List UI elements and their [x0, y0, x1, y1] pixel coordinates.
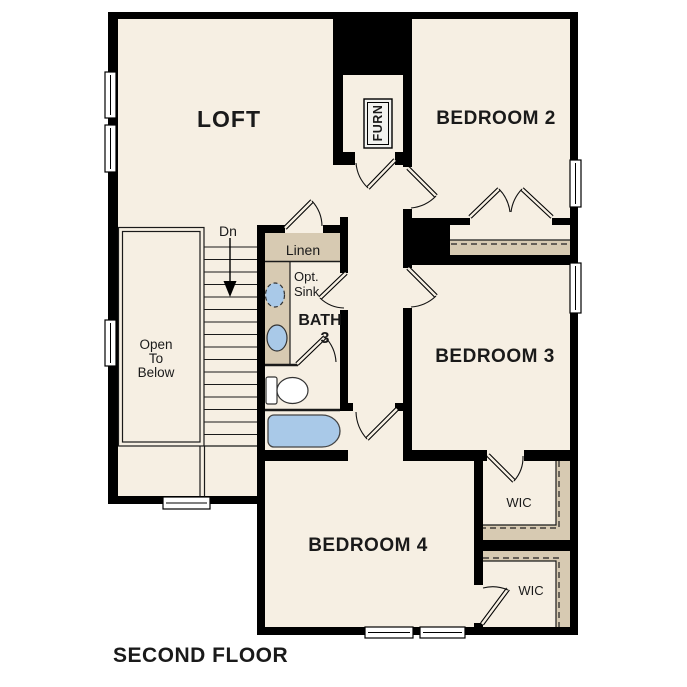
wall-wic-separator [474, 540, 578, 551]
wall-west-bath-bedroom4 [257, 225, 265, 635]
toilet-bowl [277, 378, 308, 404]
page-title: SECOND FLOOR [113, 644, 288, 667]
bedroom2-closet-shelf [450, 240, 570, 255]
bath-label-line2: 3 [321, 330, 330, 347]
optional-sink-basin [266, 283, 285, 307]
bedroom3-label: BEDROOM 3 [435, 346, 555, 367]
wall-corridor-right-upper [403, 19, 412, 167]
stairs-dn-label: Dn [219, 223, 237, 239]
floor-plan: LOFT BEDROOM 2 BEDROOM 3 BEDROOM 4 BATH … [0, 0, 687, 687]
wic-upper-label: WIC [506, 495, 531, 510]
wic-upper-shelf-right [556, 461, 570, 540]
wall-corridor-right-mid [403, 209, 412, 268]
sink-basin [267, 325, 287, 351]
wic-upper-shelf-bottom [483, 525, 556, 540]
wic-lower-shelf-right [556, 551, 570, 627]
bathtub [268, 415, 340, 447]
linen-label: Linen [286, 242, 320, 258]
wall-exterior-top [108, 12, 578, 19]
wall-linen-top-left [257, 225, 285, 233]
open-to-below-line3: Below [138, 365, 175, 380]
loft-label: LOFT [197, 106, 261, 132]
bedroom2-label: BEDROOM 2 [436, 108, 556, 129]
wall-wic-west-stub [474, 623, 483, 635]
open-to-below-line2: To [149, 351, 163, 366]
wall-bath-right-upper [340, 217, 348, 273]
wall-bath-bottom [257, 450, 348, 461]
wic-lower-label: WIC [518, 583, 543, 598]
wall-furnace-chase [333, 19, 412, 75]
wall-closet-jamb-left [450, 218, 470, 225]
wall-closet-block [412, 218, 450, 257]
wall-furnace-left [333, 75, 343, 165]
bedroom4-label: BEDROOM 4 [308, 535, 428, 556]
toilet-tank [266, 377, 277, 404]
wall-furnace-jamb-left [333, 152, 355, 165]
wall-closet-jamb-right [552, 218, 570, 225]
opt-sink-label-line1: Opt. [294, 269, 319, 284]
open-to-below-line1: Open [139, 337, 172, 352]
wall-bedroom3-bottom-right [524, 450, 570, 461]
wall-corridor-bottom-jamb-left [340, 403, 353, 411]
floor-plan-svg: LOFT BEDROOM 2 BEDROOM 3 BEDROOM 4 BATH … [0, 0, 687, 687]
wall-exterior-bottom [257, 627, 578, 635]
furnace-label: FURN [371, 105, 385, 142]
wall-bedroom2-bedroom3 [412, 255, 570, 265]
bath-label-line1: BATH [298, 312, 341, 329]
wall-wic-west [474, 450, 483, 585]
wall-corridor-right-lower [403, 308, 412, 461]
opt-sink-label-line2: Sink [294, 284, 320, 299]
